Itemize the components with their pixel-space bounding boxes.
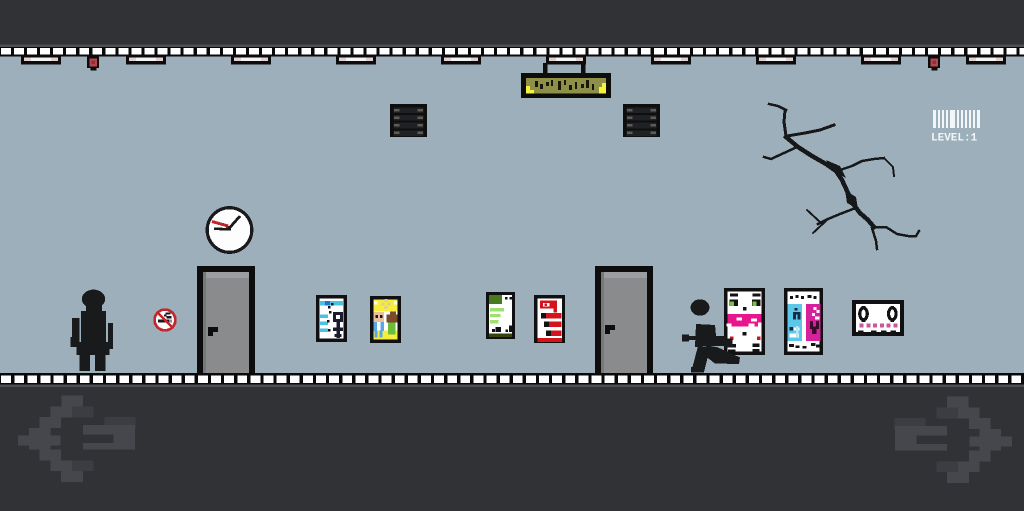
svg-text:LEVEL:1: LEVEL:1 <box>931 133 978 145</box>
